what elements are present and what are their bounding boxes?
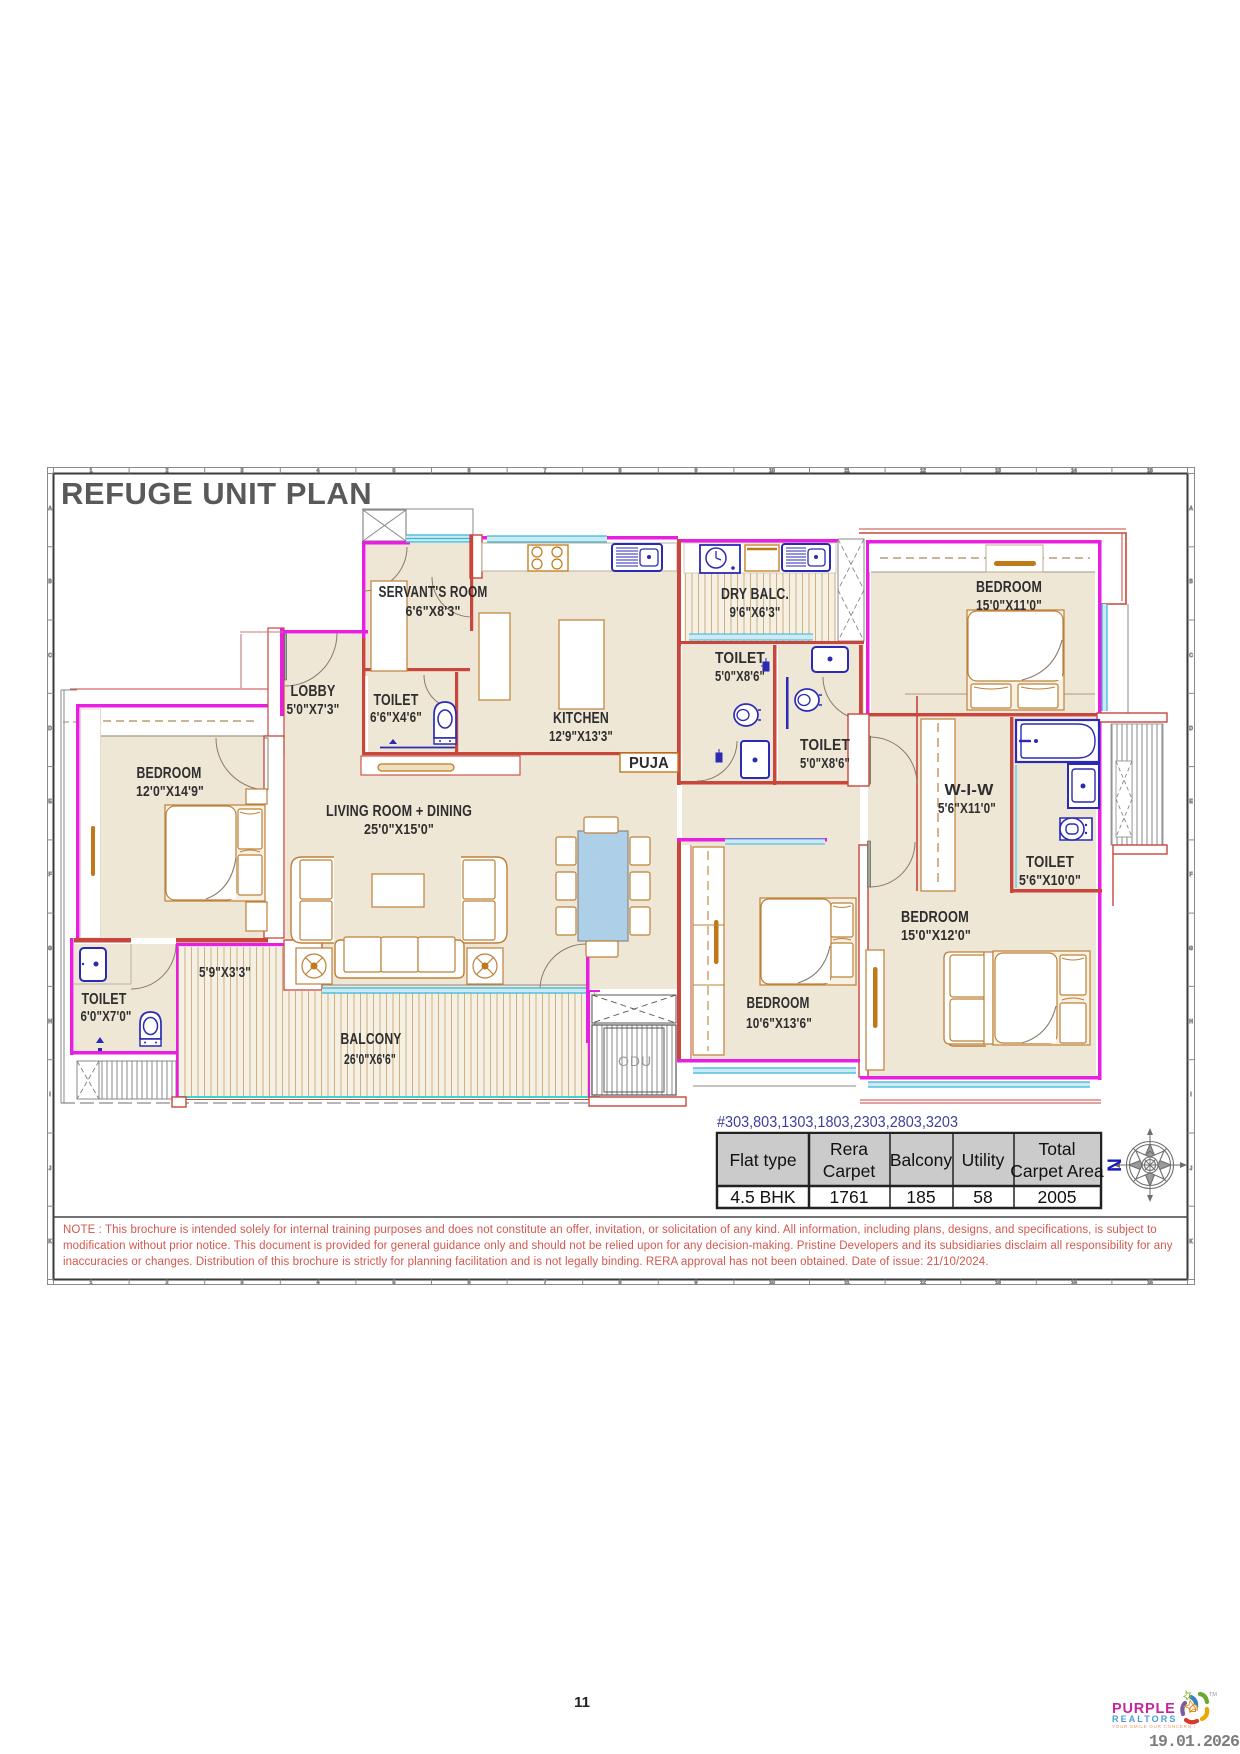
svg-text:Utility: Utility (962, 1150, 1005, 1170)
svg-text:26'0"X6'6": 26'0"X6'6" (344, 1051, 396, 1068)
svg-text:58: 58 (973, 1187, 992, 1207)
svg-text:6'0"X7'0": 6'0"X7'0" (81, 1008, 132, 1025)
svg-text:I: I (1190, 1092, 1191, 1098)
svg-text:A: A (1189, 506, 1193, 512)
svg-text:Rera: Rera (830, 1139, 868, 1159)
svg-text:12'0"X14'9": 12'0"X14'9" (136, 783, 204, 800)
svg-text:11: 11 (844, 468, 849, 474)
svg-text:8: 8 (619, 468, 622, 474)
svg-text:BEDROOM: BEDROOM (901, 909, 969, 926)
svg-text:KITCHEN: KITCHEN (553, 710, 609, 727)
svg-text:D: D (48, 726, 52, 732)
svg-text:YOUR SMILE OUR CONCERN !: YOUR SMILE OUR CONCERN ! (1112, 1724, 1196, 1729)
svg-text:12: 12 (920, 468, 926, 474)
svg-text:10: 10 (769, 468, 775, 474)
svg-text:BALCONY: BALCONY (341, 1031, 402, 1048)
svg-text:B: B (1189, 579, 1193, 585)
svg-text:K: K (1189, 1239, 1193, 1245)
svg-text:BEDROOM: BEDROOM (976, 579, 1042, 596)
svg-text:15: 15 (1147, 468, 1153, 474)
svg-text:14: 14 (1071, 468, 1077, 474)
svg-text:REFUGE UNIT PLAN: REFUGE UNIT PLAN (61, 476, 372, 511)
svg-text:E: E (1189, 799, 1193, 805)
svg-text:5'0"X8'6": 5'0"X8'6" (800, 755, 850, 772)
svg-text:LIVING ROOM + DINING: LIVING ROOM + DINING (326, 803, 472, 820)
svg-text:BEDROOM: BEDROOM (137, 765, 202, 782)
svg-text:13: 13 (995, 468, 1001, 474)
svg-text:Balcony: Balcony (890, 1150, 953, 1170)
svg-text:11: 11 (574, 1694, 590, 1711)
svg-text:C: C (1189, 653, 1193, 659)
svg-text:G: G (1189, 946, 1193, 952)
svg-text:5'0"X8'6": 5'0"X8'6" (715, 668, 765, 685)
svg-text:14: 14 (1071, 1280, 1077, 1286)
svg-text:4.5 BHK: 4.5 BHK (730, 1187, 795, 1207)
svg-text:5'0"X7'3": 5'0"X7'3" (287, 701, 340, 718)
svg-text:2005: 2005 (1038, 1187, 1077, 1207)
svg-text:BEDROOM: BEDROOM (747, 995, 810, 1012)
svg-text:PUJA: PUJA (629, 755, 669, 772)
svg-text:NOTE : This brochure is intend: NOTE : This brochure is intended solely … (63, 1224, 1157, 1236)
svg-text:4: 4 (317, 1280, 320, 1286)
svg-text:185: 185 (906, 1187, 935, 1207)
svg-text:TM: TM (1209, 1692, 1217, 1698)
svg-text:9'6"X6'3": 9'6"X6'3" (730, 604, 781, 621)
svg-text:5'9"X3'3": 5'9"X3'3" (199, 964, 251, 981)
svg-text:11: 11 (844, 1280, 849, 1286)
svg-text:TOILET: TOILET (800, 737, 850, 754)
svg-text:25'0"X15'0": 25'0"X15'0" (364, 821, 434, 838)
svg-text:8: 8 (619, 1280, 622, 1286)
svg-text:H: H (1189, 1019, 1193, 1025)
svg-text:LOBBY: LOBBY (291, 683, 336, 700)
svg-text:2: 2 (166, 468, 169, 474)
svg-text:D: D (1189, 726, 1193, 732)
svg-text:7: 7 (544, 468, 547, 474)
svg-text:K: K (48, 1239, 52, 1245)
svg-text:Carpet: Carpet (823, 1161, 876, 1181)
svg-text:3: 3 (241, 468, 244, 474)
svg-text:REALTORS: REALTORS (1112, 1714, 1177, 1724)
svg-text:DRY BALC.: DRY BALC. (721, 586, 789, 603)
svg-text:B: B (48, 579, 52, 585)
svg-text:6: 6 (468, 468, 471, 474)
svg-text:F: F (1189, 872, 1192, 878)
svg-text:W-I-W: W-I-W (945, 782, 994, 799)
svg-text:G: G (48, 946, 52, 952)
svg-text:4: 4 (317, 468, 320, 474)
svg-text:ODU: ODU (618, 1053, 652, 1069)
svg-text:10'6"X13'6": 10'6"X13'6" (746, 1015, 812, 1032)
svg-text:H: H (48, 1019, 52, 1025)
svg-text:12'9"X13'3": 12'9"X13'3" (549, 728, 613, 745)
svg-text:2: 2 (166, 1280, 169, 1286)
svg-text:9: 9 (695, 468, 698, 474)
svg-text:12: 12 (920, 1280, 926, 1286)
svg-text:Total: Total (1039, 1139, 1076, 1159)
svg-text:9: 9 (695, 1280, 698, 1286)
svg-text:1: 1 (90, 1280, 93, 1286)
svg-text:1761: 1761 (830, 1187, 869, 1207)
svg-text:5'6"X11'0": 5'6"X11'0" (938, 800, 996, 817)
svg-text:J: J (1190, 1166, 1193, 1172)
svg-text:13: 13 (995, 1280, 1001, 1286)
svg-text:A: A (48, 506, 52, 512)
svg-text:15'0"X11'0": 15'0"X11'0" (976, 597, 1042, 614)
svg-text:1: 1 (90, 468, 93, 474)
svg-text:19.01.2026: 19.01.2026 (1149, 1732, 1239, 1751)
svg-text:N: N (1105, 1158, 1126, 1172)
svg-text:10: 10 (769, 1280, 775, 1286)
svg-text:3: 3 (241, 1280, 244, 1286)
svg-text:TOILET: TOILET (82, 991, 127, 1008)
svg-text:E: E (48, 799, 52, 805)
svg-text:15'0"X12'0": 15'0"X12'0" (901, 927, 971, 944)
svg-text:TOILET: TOILET (374, 692, 419, 709)
svg-text:TOILET: TOILET (1026, 854, 1074, 871)
svg-text:7: 7 (544, 1280, 547, 1286)
svg-text:6: 6 (468, 1280, 471, 1286)
svg-text:inaccuracies or changes. Distr: inaccuracies or changes. Distribution of… (63, 1256, 989, 1268)
svg-text:5: 5 (393, 468, 396, 474)
svg-text:15: 15 (1147, 1280, 1153, 1286)
svg-text:#303,803,1303,1803,2303,2803,3: #303,803,1303,1803,2303,2803,3203 (717, 1114, 958, 1131)
svg-text:SERVANT'S ROOM: SERVANT'S ROOM (379, 584, 488, 601)
svg-text:J: J (49, 1166, 52, 1172)
svg-text:TOILET: TOILET (715, 650, 765, 667)
svg-text:6'6"X4'6": 6'6"X4'6" (370, 709, 422, 726)
svg-text:C: C (48, 653, 52, 659)
svg-text:I: I (49, 1092, 50, 1098)
svg-text:5: 5 (393, 1280, 396, 1286)
svg-text:F: F (48, 872, 51, 878)
svg-text:Carpet Area: Carpet Area (1010, 1161, 1104, 1181)
svg-text:5'6"X10'0": 5'6"X10'0" (1019, 872, 1081, 889)
svg-text:6'6"X8'3": 6'6"X8'3" (406, 603, 461, 620)
svg-text:modification without prior not: modification without prior notice. This … (63, 1240, 1173, 1252)
svg-text:Flat type: Flat type (729, 1150, 796, 1170)
